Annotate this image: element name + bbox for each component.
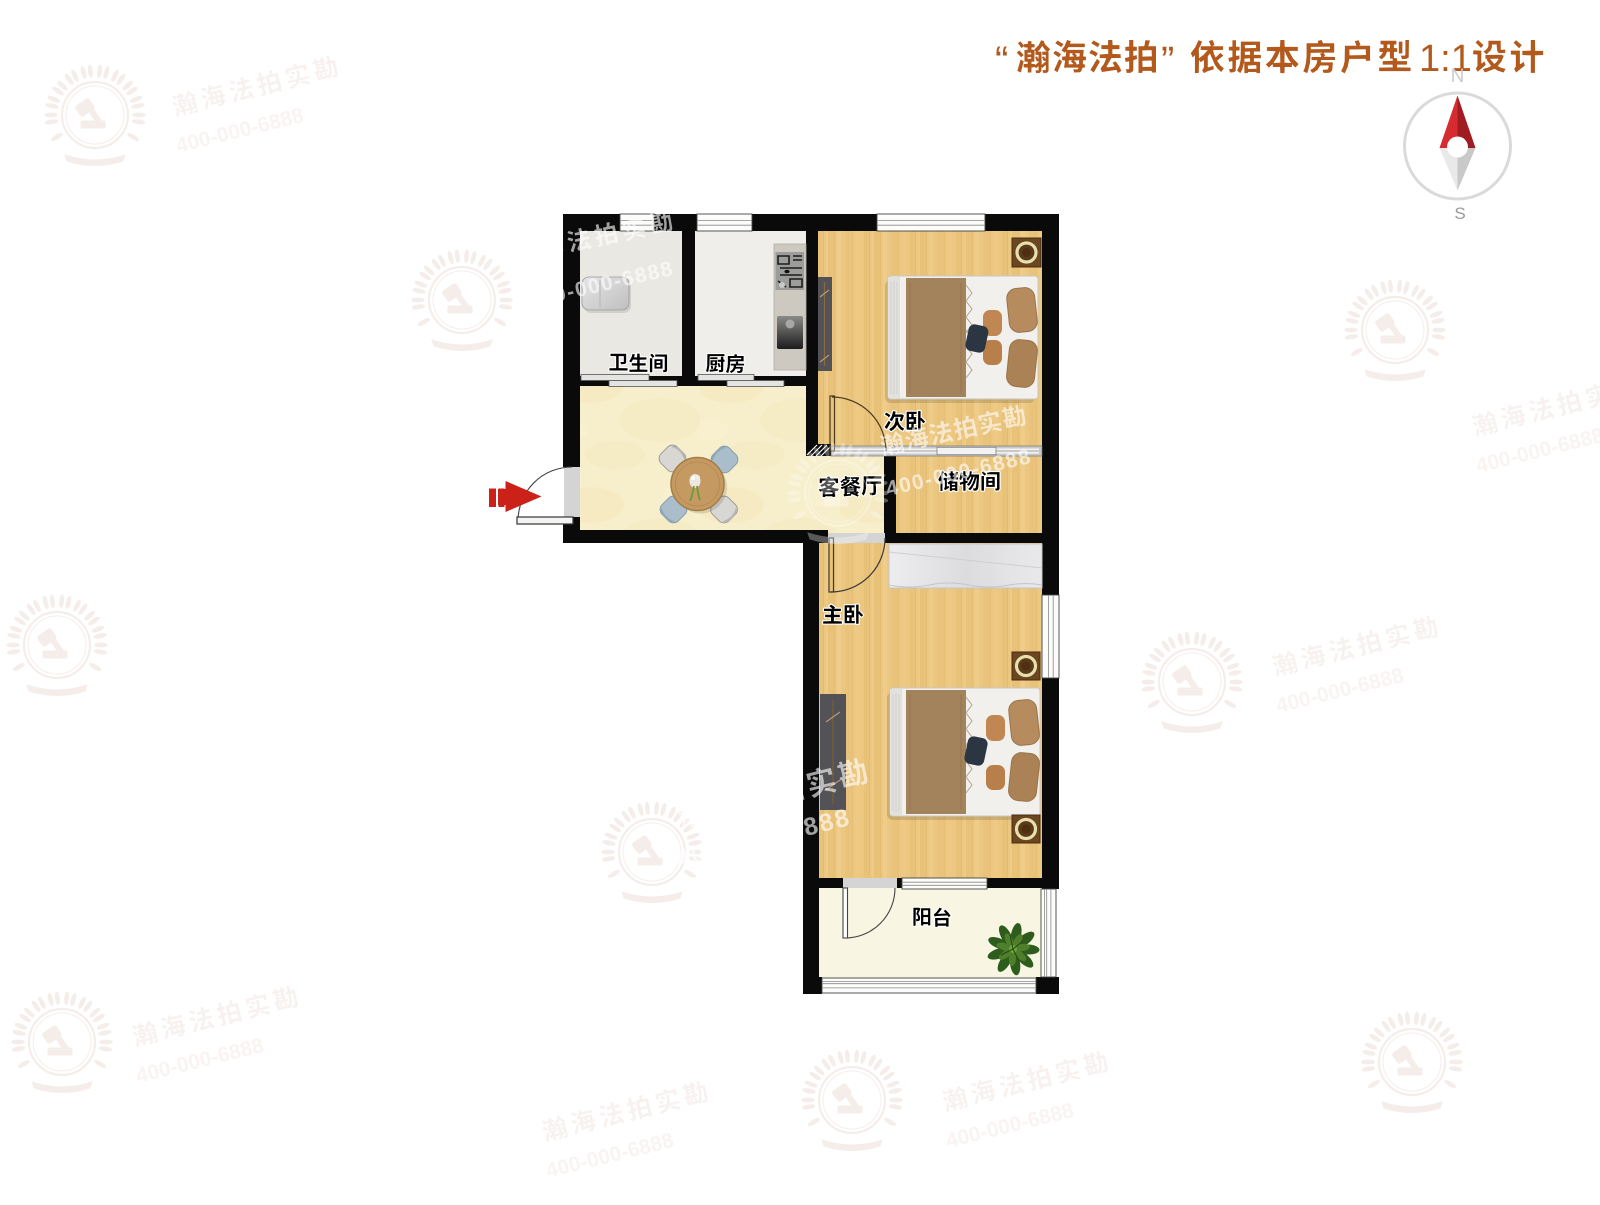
svg-text:”: ”	[1161, 39, 1174, 83]
svg-text:“: “	[995, 39, 1008, 83]
svg-text:S: S	[1454, 204, 1465, 223]
svg-text:N: N	[1451, 66, 1465, 87]
